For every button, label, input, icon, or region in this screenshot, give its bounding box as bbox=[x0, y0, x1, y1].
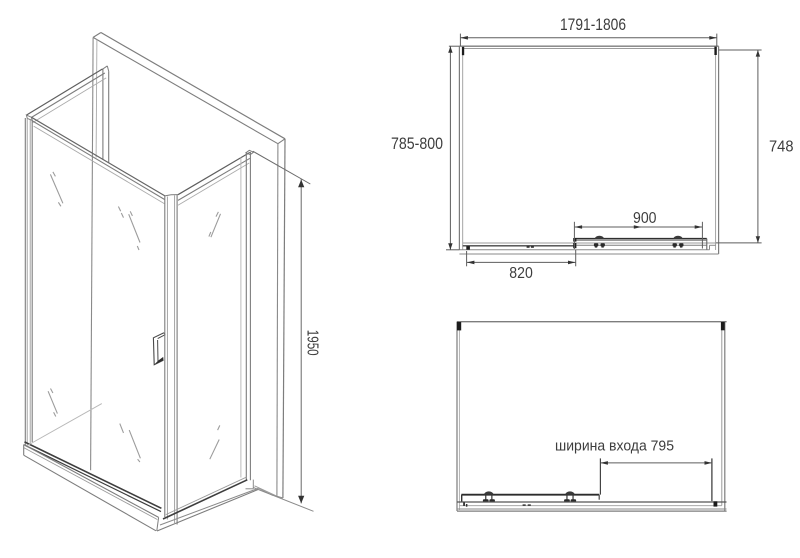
svg-text:820: 820 bbox=[509, 265, 533, 282]
svg-text:1791-1806: 1791-1806 bbox=[560, 16, 626, 34]
svg-text:785-800: 785-800 bbox=[391, 134, 443, 153]
svg-text:1950: 1950 bbox=[304, 330, 321, 356]
svg-text:ширина входа 795: ширина входа 795 bbox=[555, 437, 674, 454]
svg-text:900: 900 bbox=[633, 210, 657, 227]
svg-text:748: 748 bbox=[769, 139, 794, 156]
